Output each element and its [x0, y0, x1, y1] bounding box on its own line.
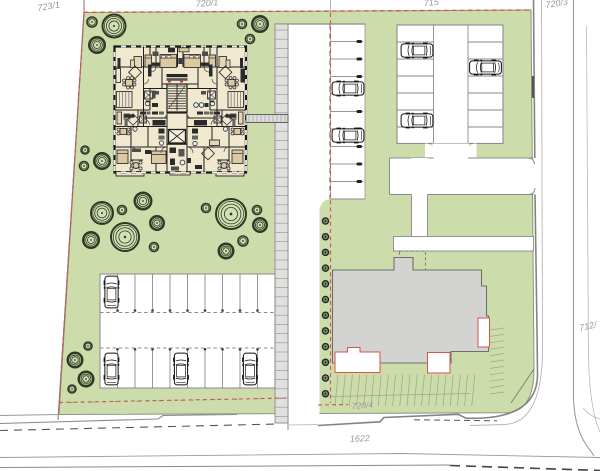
- svg-text:1622: 1622: [350, 433, 371, 444]
- svg-text:715: 715: [423, 0, 440, 8]
- svg-text:720/4: 720/4: [351, 400, 373, 411]
